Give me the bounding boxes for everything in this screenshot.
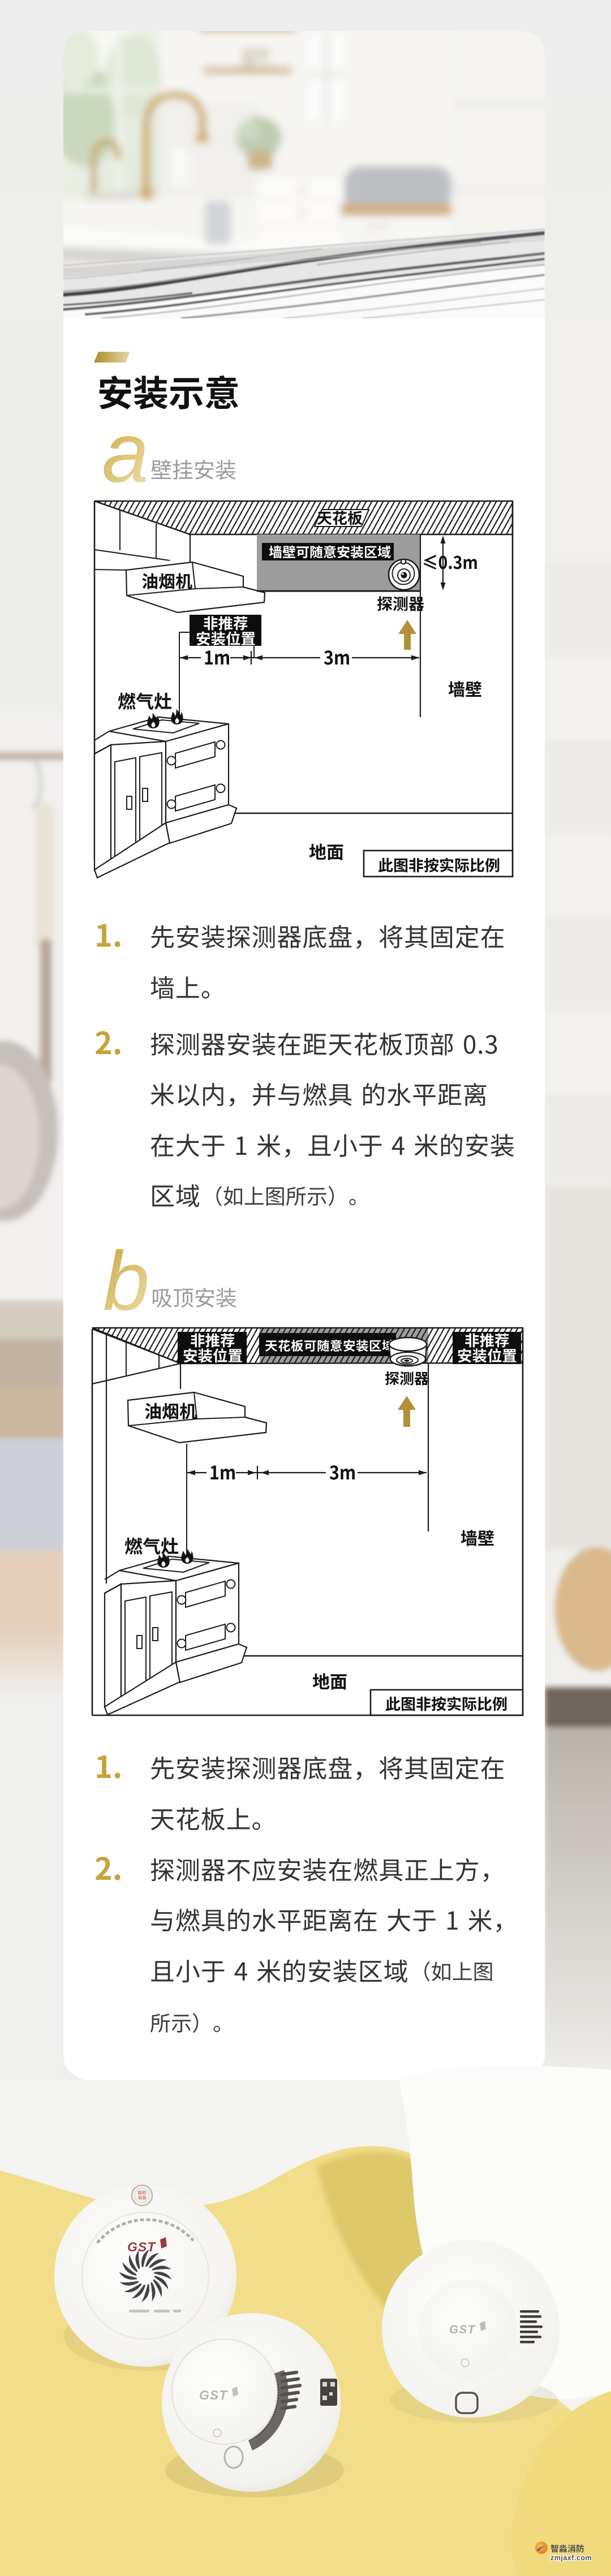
svg-text:GST: GST [199,2388,228,2402]
svg-text:b: b [103,1235,149,1328]
svg-text:zmjaxf.com: zmjaxf.com [550,2554,592,2562]
svg-text:GST: GST [127,2240,156,2254]
svg-text:GST: GST [449,2323,476,2336]
svg-text:a: a [102,405,149,500]
